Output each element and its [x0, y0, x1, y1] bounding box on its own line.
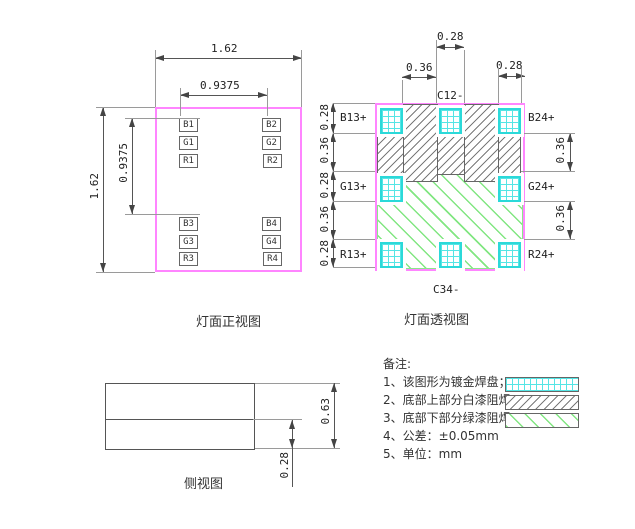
- arrow: [427, 74, 436, 80]
- ext-line: [180, 88, 181, 116]
- ext-line: [521, 201, 575, 202]
- pad-b1: B1: [179, 118, 198, 132]
- pad-b4: B4: [262, 217, 281, 231]
- dim-left-5: 0.28: [318, 240, 331, 267]
- dim-line-pitch-x: [180, 95, 267, 96]
- dim-line-width: [155, 58, 302, 59]
- dim-line-height: [103, 107, 104, 272]
- ext-line: [267, 88, 268, 116]
- label-b13: B13+: [340, 111, 367, 124]
- label-r13: R13+: [340, 248, 367, 261]
- arrow: [331, 383, 337, 392]
- dim-left-4: 0.36: [318, 206, 331, 233]
- dim-line-pitch-y: [132, 118, 133, 214]
- perspective-view-title: 灯面透视图: [404, 313, 469, 328]
- arrow: [498, 73, 507, 79]
- white-mask-band: [377, 135, 521, 175]
- arrow: [100, 263, 106, 272]
- ext-line: [125, 118, 200, 119]
- side-view-divider: [105, 419, 253, 420]
- white-mask-tooth-right: [464, 104, 499, 182]
- arrow: [567, 230, 573, 239]
- pad-b2: B2: [262, 118, 281, 132]
- dim-left-2: 0.36: [318, 137, 331, 164]
- ext-line: [255, 383, 340, 384]
- pad-g1: G1: [179, 136, 198, 150]
- legend-green-mask-swatch: [505, 413, 579, 428]
- note-item-2: 2、底部上部分白漆阻焊；: [383, 393, 523, 407]
- ext-line: [521, 133, 575, 134]
- arrow: [289, 420, 295, 429]
- ext-line: [333, 133, 375, 134]
- label-b24: B24+: [528, 111, 555, 124]
- ext-line: [125, 214, 200, 215]
- note-item-5: 5、单位：mm: [383, 447, 462, 461]
- ext-line: [155, 50, 156, 107]
- arrow: [258, 92, 267, 98]
- label-g13: G13+: [340, 180, 367, 193]
- ext-line: [333, 267, 375, 268]
- ext-line: [521, 68, 522, 103]
- arrow: [436, 44, 445, 50]
- dim-pitch-x-text: 0.9375: [199, 79, 241, 92]
- pad-r3: R3: [179, 252, 198, 266]
- gold-pad-r13: [380, 242, 403, 268]
- pad-r2: R2: [263, 154, 282, 168]
- ext-line: [521, 171, 575, 172]
- front-view-title: 灯面正视图: [196, 315, 261, 330]
- legend-gold-pad-swatch: [505, 377, 579, 392]
- ext-line: [333, 103, 375, 104]
- label-g24: G24+: [528, 180, 555, 193]
- dim-pitch-y-text: 0.9375: [117, 143, 130, 183]
- note-item-4: 4、公差：±0.05mm: [383, 429, 499, 443]
- dim-left-3: 0.28: [318, 172, 331, 199]
- ext-line: [402, 80, 403, 103]
- dim-gap-text: 0.36: [405, 61, 434, 74]
- arrow: [567, 162, 573, 171]
- dim-right-1: 0.36: [554, 137, 567, 164]
- dim-line-lower-height: [292, 420, 293, 487]
- arrow: [180, 92, 189, 98]
- ext-line: [333, 239, 375, 240]
- arrow: [289, 439, 295, 448]
- legend-white-mask-swatch: [505, 395, 579, 410]
- label-c12: C12-: [437, 89, 464, 102]
- pad-g3: G3: [179, 235, 198, 249]
- dim-width-text: 1.62: [210, 42, 239, 55]
- ext-line: [301, 50, 302, 107]
- dim-height-text: 1.62: [88, 173, 101, 200]
- dim-pad-right-text: 0.28: [495, 59, 524, 72]
- ext-line: [333, 171, 375, 172]
- dim-left-1: 0.28: [318, 104, 331, 131]
- ext-line: [333, 201, 375, 202]
- dim-lower-height-text: 0.28: [278, 452, 291, 479]
- arrow: [455, 44, 464, 50]
- ext-line: [96, 107, 155, 108]
- pad-r1: R1: [179, 154, 198, 168]
- side-view-title: 侧视图: [184, 477, 223, 492]
- gold-pad-b13: [380, 108, 403, 134]
- pad-b3: B3: [179, 217, 198, 231]
- drawing-canvas: B1 G1 R1 B2 G2 R2 B3 G3 R3 B4 G4 R4 1.62…: [0, 0, 635, 529]
- side-view-outline: [105, 383, 255, 450]
- gold-pad-g13: [380, 176, 403, 202]
- note-item-1: 1、该图形为镀金焊盘；: [383, 375, 511, 389]
- dim-pad-top-text: 0.28: [436, 30, 465, 43]
- gold-pad-g24: [498, 176, 521, 202]
- ext-line: [498, 68, 499, 103]
- white-mask-tooth-left: [403, 104, 438, 182]
- pad-g4: G4: [262, 235, 281, 249]
- ext-line: [255, 448, 340, 449]
- label-c34: C34-: [433, 283, 460, 296]
- arrow: [567, 201, 573, 210]
- ext-line: [96, 272, 155, 273]
- ext-line: [521, 239, 575, 240]
- notes-heading: 备注:: [383, 357, 411, 371]
- arrow: [155, 55, 164, 61]
- arrow: [331, 439, 337, 448]
- pad-g2: G2: [262, 136, 281, 150]
- perspective-view-outline: [375, 103, 525, 271]
- note-item-3: 3、底部下部分绿漆阻焊；: [383, 411, 523, 425]
- arrow: [100, 107, 106, 116]
- ext-line: [464, 50, 465, 103]
- dim-right-2: 0.36: [554, 205, 567, 232]
- label-r24: R24+: [528, 248, 555, 261]
- gold-pad-c34: [439, 242, 462, 268]
- gold-pad-b24: [498, 108, 521, 134]
- gold-pad-r24: [498, 242, 521, 268]
- pad-r4: R4: [263, 252, 282, 266]
- arrow: [402, 74, 411, 80]
- arrow: [129, 118, 135, 127]
- gold-pad-c12: [439, 108, 462, 134]
- arrow: [567, 133, 573, 142]
- arrow: [129, 205, 135, 214]
- dim-total-height-text: 0.63: [319, 398, 332, 425]
